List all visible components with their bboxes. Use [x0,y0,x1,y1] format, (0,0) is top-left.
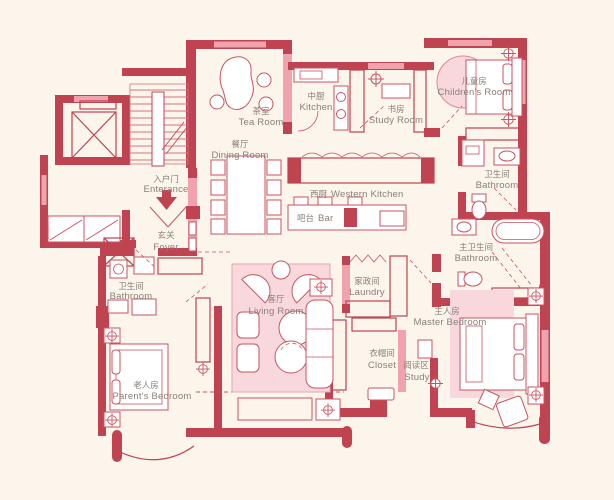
svg-text:阅读区: 阅读区 [403,360,429,370]
svg-text:主人房: 主人房 [434,306,460,316]
study-desk [382,84,410,98]
bath-cabinet [462,140,484,166]
closet-label: 衣帽间 Closet [368,348,396,371]
wall [458,192,466,214]
reading-desk [418,340,432,358]
svg-text:Enterance: Enterance [143,184,188,195]
balcony [238,398,340,420]
entrance-label: 入户门 Enterance [143,174,188,195]
pillow [503,64,512,84]
svg-text:Foyer: Foyer [153,242,178,253]
wall [518,134,527,214]
svg-text:中厨: 中厨 [307,91,325,101]
bathroom-top-right-label: 卫生间 Bathroom [476,169,519,191]
svg-text:Master Bedroom: Master Bedroom [413,317,486,328]
window-wall [283,42,292,134]
balcony-grid-mat [238,398,312,420]
coffee-table [275,341,307,373]
armchair [237,344,259,372]
tea-stool [210,95,224,109]
door-arc [298,111,318,131]
shelf-hatched [346,301,390,317]
dining-chair [211,180,225,195]
kitchen-label: 中厨 Kitchen [299,91,332,113]
door-swing [150,207,168,227]
svg-text:儿童房: 儿童房 [461,76,487,86]
svg-text:Study: Study [404,372,429,383]
svg-text:家政间: 家政间 [354,276,380,286]
hanging-rack [352,318,396,331]
svg-text:卫生间: 卫生间 [118,281,144,291]
wall [430,408,472,417]
living-room-furniture [232,261,333,392]
svg-text:客厅: 客厅 [267,294,285,304]
wall [188,168,197,178]
floor-plan-drawing: 茶室 Tea Room 中厨 Kitchen 书房 Study Room 儿童房… [0,0,614,500]
window-wall [214,42,266,48]
svg-text:老人房: 老人房 [133,380,159,390]
svg-text:Western Kitchen: Western Kitchen [331,189,404,200]
svg-text:吧台: 吧台 [297,213,314,223]
dining-chair [267,160,281,175]
svg-text:Parent's Bedroom: Parent's Bedroom [113,391,192,402]
wall-cap [112,430,122,462]
pillow [112,350,120,374]
toilet-bowl [472,201,486,219]
tea-room-label: 茶室 Tea Room [239,106,284,128]
shelf-hatched [390,256,407,316]
svg-text:Closet: Closet [368,360,396,371]
laundry-fittings [346,255,407,317]
svg-text:Study Room: Study Room [369,115,423,126]
entrance-marker [150,190,186,227]
folding-door [350,255,386,262]
window-wall [542,330,549,382]
wall [186,428,344,437]
laundry-label: 家政间 Laundry [349,276,385,298]
bath-cabinet [134,257,154,274]
wall [283,42,292,54]
dining-chair [267,200,281,215]
svg-text:Tea Room: Tea Room [239,117,284,128]
hatched-wall [350,70,364,132]
kitchen-counter [294,68,338,82]
closet-bench [368,388,394,400]
door-jamb [186,206,200,219]
counter-cap [421,158,434,183]
wall-pier [96,306,109,328]
svg-text:Living Room: Living Room [248,306,303,317]
dining-chair [267,180,281,195]
elevator [72,101,116,158]
tea-stool [257,73,271,87]
bar-sink-block [344,208,357,227]
wall-cap [342,426,352,448]
svg-text:Bathroom: Bathroom [476,180,519,191]
dining-room-label: 餐厅 Dining Room [211,139,268,161]
counter-hatched [288,158,434,183]
window-wall [368,63,404,69]
counter-cap [288,158,301,183]
svg-text:Kitchen: Kitchen [299,102,332,113]
wall [342,256,350,265]
svg-text:Children's Room: Children's Room [438,87,511,98]
shower-door-line [502,248,532,286]
dining-table [227,156,265,234]
wall [122,95,130,165]
wall [214,306,222,430]
floor-plan-canvas: 茶室 Tea Room 中厨 Kitchen 书房 Study Room 儿童房… [0,0,614,500]
dining-furniture [211,156,281,234]
dining-chair [211,200,225,215]
master-bathroom-label: 主卫生间 Bathroom [455,242,498,264]
svg-text:Bathroom: Bathroom [455,253,498,264]
wall [432,283,441,307]
sofa [306,300,333,388]
sliding-panel [189,238,196,251]
radiator [158,258,202,274]
foyer-label: 玄关 Foyer [153,230,178,253]
svg-text:Bathroom: Bathroom [110,291,153,302]
stair-stringer [152,92,164,166]
study-room-label: 书房 Study Room [369,104,423,126]
svg-text:Bar: Bar [318,213,333,224]
reading-area-label: 阅读区 Study [403,360,429,383]
staircase [130,84,188,166]
svg-text:Laundry: Laundry [349,287,385,298]
radiator [466,128,520,140]
svg-text:西厨: 西厨 [310,189,328,199]
wall [55,95,63,165]
door-swing [186,284,208,302]
sliding-panel [189,222,196,235]
svg-text:入户门: 入户门 [153,174,179,184]
wall [432,254,441,272]
window-wall [42,175,47,205]
closet-fittings [330,318,396,400]
headboard [526,314,538,394]
door-swing [494,188,516,210]
tea-table [220,57,253,110]
wall [122,68,192,76]
svg-text:主卫生间: 主卫生间 [459,242,493,252]
dining-chair [267,219,281,234]
bathroom-left-label: 卫生间 Bathroom [110,281,153,302]
wardrobe [196,298,210,362]
door-swing [168,207,186,227]
tea-room-furniture [210,57,273,111]
western-kitchen-counter [288,153,434,183]
washer [110,260,127,278]
side-table-round [272,261,290,279]
svg-text:茶室: 茶室 [252,106,270,116]
entrance-arrow-icon [156,197,177,210]
bay-window-curve [120,446,194,460]
western-kitchen-label: 西厨 Western Kitchen [310,189,404,200]
svg-text:玄关: 玄关 [157,230,175,240]
door-swing [410,260,431,283]
wall [283,122,292,134]
svg-text:书房: 书房 [387,104,404,114]
svg-text:Dining Room: Dining Room [211,150,268,161]
headboard [512,58,522,116]
svg-text:卫生间: 卫生间 [484,169,510,179]
toilet-bowl [464,272,482,286]
hood-scallop [302,153,420,157]
pillow [514,324,524,350]
wall [100,248,134,256]
door-swing [442,106,462,128]
window-wall [448,40,492,46]
bar-stool [294,197,308,205]
pillow [514,354,524,380]
lounge-chair [496,395,529,427]
svg-text:衣帽间: 衣帽间 [369,348,395,358]
elevator-x-icon [72,112,116,158]
dining-chair [211,219,225,234]
dining-chair [211,160,225,175]
vanity [452,219,476,235]
svg-text:餐厅: 餐厅 [231,139,249,149]
ceiling-lamp-icon [196,362,210,376]
wall [98,256,106,436]
wall-cap [539,414,550,444]
